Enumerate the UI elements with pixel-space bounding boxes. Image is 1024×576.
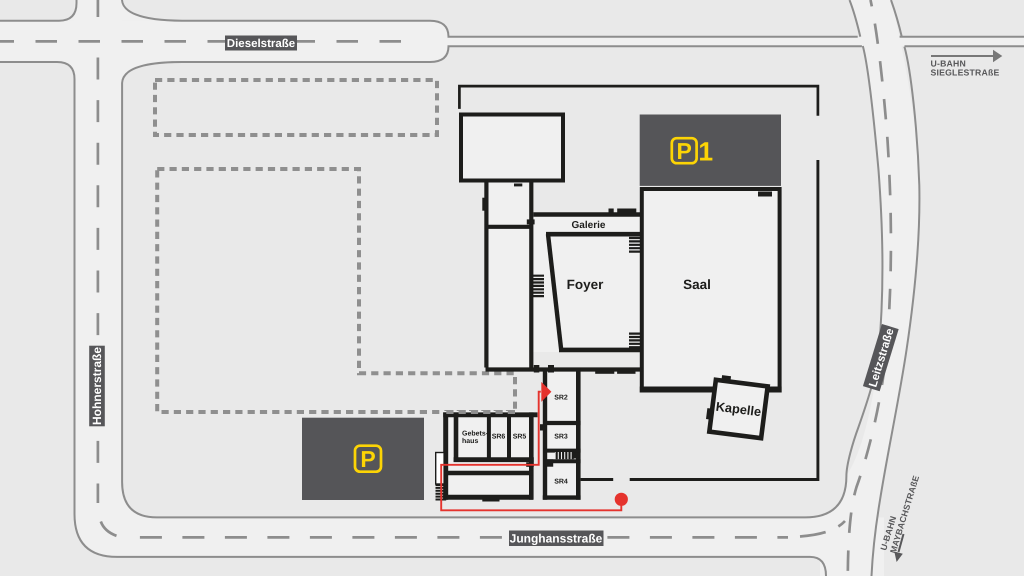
svg-text:SR4: SR4 [554,479,568,486]
svg-text:SR3: SR3 [554,434,568,441]
svg-text:Dieselstraße: Dieselstraße [227,38,295,50]
svg-text:Hohnerstraße: Hohnerstraße [90,347,104,425]
svg-text:P: P [677,138,692,164]
svg-text:SR2: SR2 [554,395,568,402]
svg-text:haus: haus [462,437,478,445]
svg-text:SR6: SR6 [492,434,506,441]
svg-text:Junghansstraße: Junghansstraße [510,532,603,546]
svg-text:Foyer: Foyer [567,277,605,292]
svg-text:Galerie: Galerie [572,220,606,231]
svg-text:Gebets-: Gebets- [462,430,489,438]
svg-text:1: 1 [698,136,713,166]
svg-text:Saal: Saal [683,277,711,292]
svg-text:SR5: SR5 [513,434,527,441]
svg-text:P: P [360,446,375,472]
svg-text:SIEGLESTRAßE: SIEGLESTRAßE [931,68,1000,78]
